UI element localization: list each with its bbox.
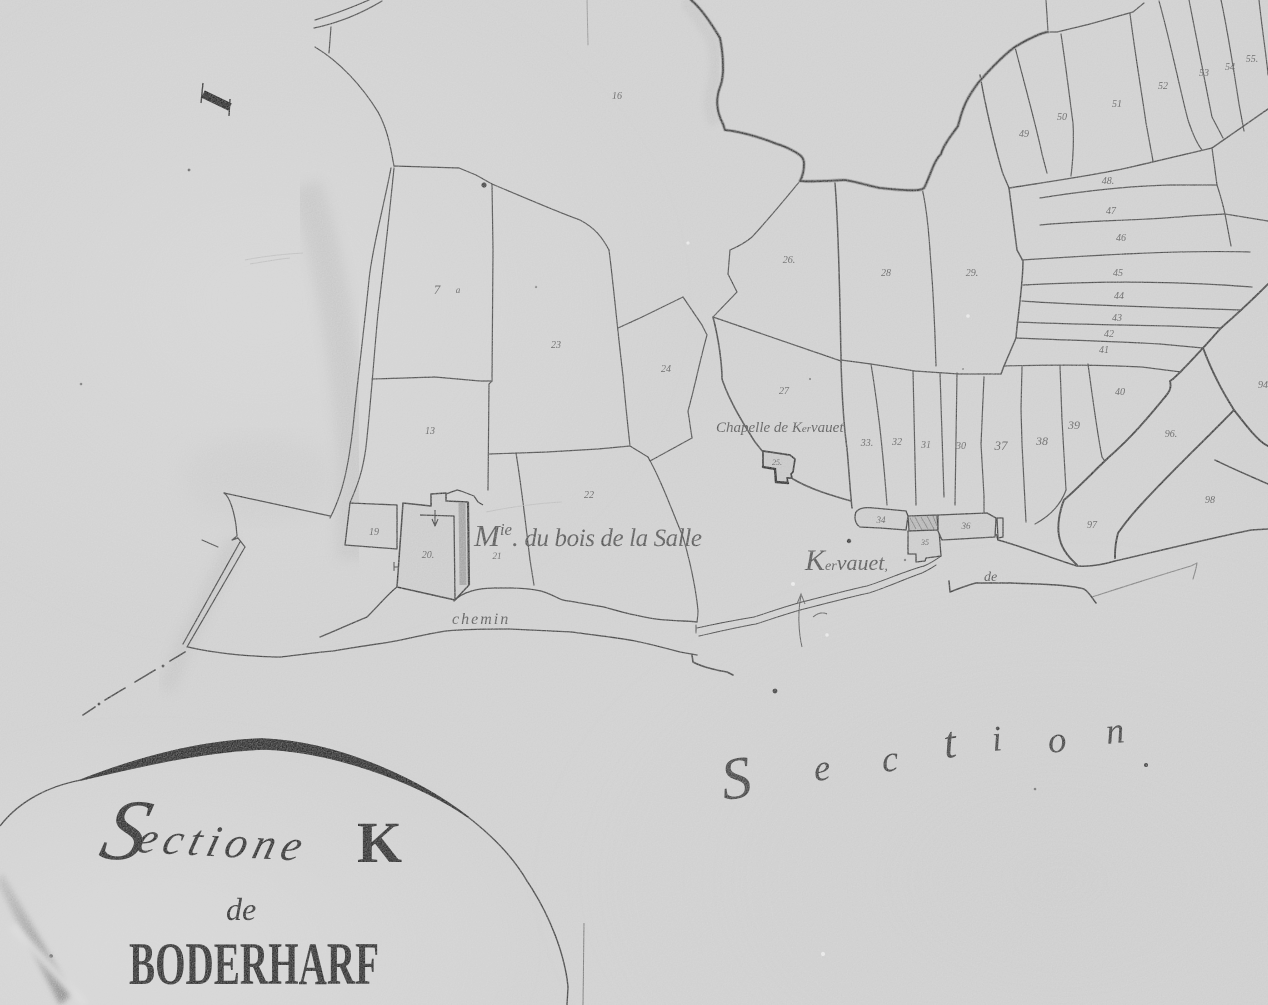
svg-text:40: 40 (1115, 387, 1125, 398)
svg-text:26.: 26. (783, 255, 796, 266)
svg-text:45: 45 (1113, 268, 1123, 279)
svg-text:36: 36 (961, 521, 972, 531)
svg-text:41: 41 (1099, 345, 1109, 356)
svg-text:33.: 33. (860, 438, 874, 449)
svg-text:K: K (357, 810, 402, 875)
svg-text:30: 30 (955, 441, 966, 452)
svg-text:97: 97 (1087, 520, 1098, 531)
svg-text:94: 94 (1258, 380, 1268, 391)
svg-text:28: 28 (881, 268, 891, 279)
svg-text:49: 49 (1019, 129, 1029, 140)
svg-text:de: de (226, 891, 256, 927)
svg-text:96.: 96. (1165, 429, 1178, 440)
svg-text:de: de (984, 570, 997, 585)
svg-text:51: 51 (1112, 99, 1122, 110)
svg-text:19: 19 (369, 527, 379, 538)
svg-text:25.: 25. (772, 458, 782, 467)
svg-text:20.: 20. (422, 550, 435, 561)
svg-text:98: 98 (1205, 495, 1215, 506)
svg-text:52: 52 (1158, 81, 1168, 92)
svg-text:23: 23 (551, 340, 561, 351)
svg-text:7: 7 (434, 282, 441, 297)
svg-text:50: 50 (1057, 112, 1067, 123)
svg-text:37: 37 (994, 438, 1009, 453)
svg-text:32: 32 (891, 437, 902, 448)
svg-text:22: 22 (584, 490, 594, 501)
svg-text:16: 16 (612, 91, 622, 102)
svg-text:a: a (456, 285, 461, 295)
svg-text:46: 46 (1116, 233, 1126, 244)
svg-text:BODERHARF: BODERHARF (129, 931, 379, 997)
svg-text:43: 43 (1112, 313, 1122, 324)
svg-text:44: 44 (1114, 291, 1124, 302)
svg-text:48.: 48. (1102, 176, 1115, 187)
svg-text:55.: 55. (1246, 54, 1259, 65)
svg-text:Chapelle de Kervauet: Chapelle de Kervauet (716, 420, 844, 436)
svg-text:ectione: ectione (132, 813, 314, 871)
svg-text:53: 53 (1199, 68, 1209, 79)
svg-text:42: 42 (1104, 329, 1114, 340)
svg-text:13: 13 (425, 426, 435, 437)
svg-text:39: 39 (1067, 418, 1080, 432)
svg-text:35: 35 (920, 538, 929, 547)
svg-text:47: 47 (1106, 206, 1117, 217)
svg-text:chemin: chemin (452, 611, 510, 628)
svg-text:24: 24 (661, 364, 671, 375)
svg-text:38: 38 (1035, 434, 1048, 448)
svg-text:31: 31 (920, 440, 931, 451)
svg-text:54: 54 (1225, 62, 1235, 73)
svg-text:34: 34 (876, 515, 887, 525)
svg-text:27: 27 (779, 386, 790, 397)
svg-text:29.: 29. (966, 268, 979, 279)
